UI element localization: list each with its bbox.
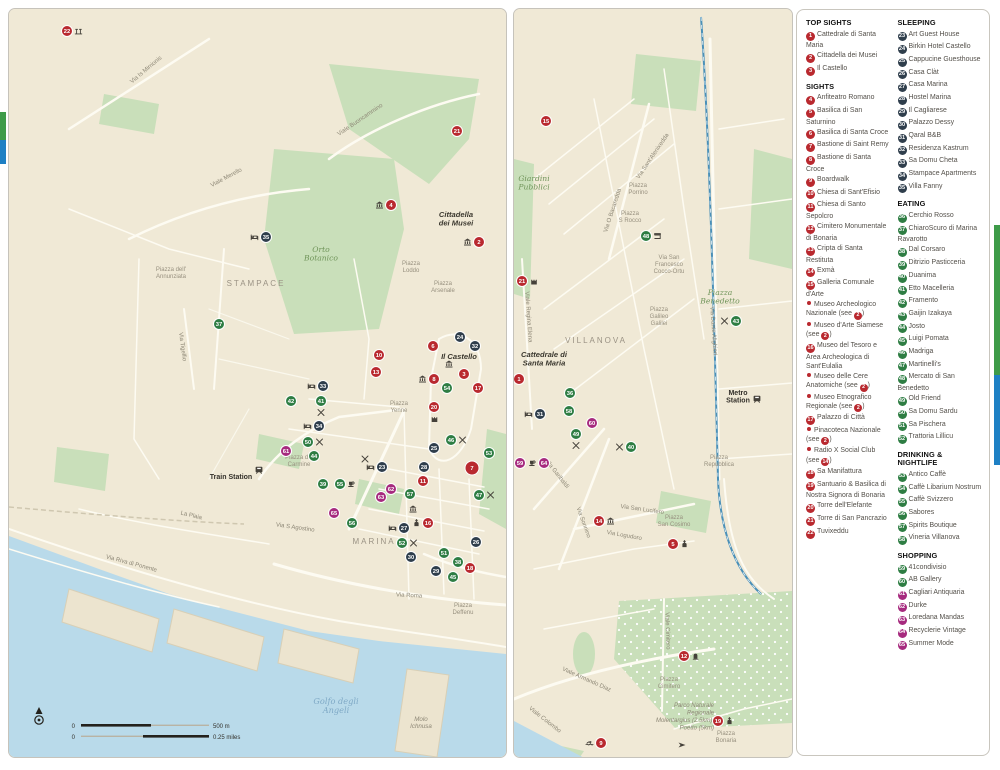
legend-item: 13Cripta di Santa Restituta — [806, 244, 891, 265]
legend-marker-number: 18 — [806, 470, 815, 479]
svg-text:7: 7 — [470, 466, 473, 472]
map-marker-21: 21 — [452, 126, 463, 137]
svg-text:44: 44 — [311, 454, 318, 460]
legend-marker-number: 41 — [898, 286, 907, 295]
legend-marker-number: 40 — [898, 274, 907, 283]
svg-text:18: 18 — [467, 566, 474, 572]
svg-text:54: 54 — [444, 386, 451, 392]
legend-marker-number: 30 — [898, 121, 907, 130]
legend-marker-number: 14 — [806, 268, 815, 277]
map-marker-16: 16 — [423, 518, 434, 529]
legend-section-title: EATING — [898, 200, 983, 209]
map-marker-35: 35 — [261, 232, 272, 243]
map-marker-26: 26 — [471, 537, 482, 548]
map-label: PiazzaBonaria — [716, 731, 737, 744]
svg-text:20: 20 — [431, 405, 437, 411]
legend-marker-number: 2 — [821, 437, 829, 445]
svg-text:28: 28 — [421, 465, 428, 471]
legend-marker-number: 53 — [898, 473, 907, 482]
svg-text:37: 37 — [216, 322, 222, 328]
map-left-canvas: STAMPACEMARINAOrtoBotanicoCittadelladei … — [9, 9, 506, 757]
legend-item: Museo delle Cere Anatomiche (see 2) — [806, 372, 891, 392]
svg-text:46: 46 — [448, 438, 455, 444]
legend-marker-number: 46 — [898, 350, 907, 359]
svg-text:21: 21 — [519, 279, 526, 285]
map-marker-29: 29 — [431, 566, 442, 577]
map-marker-14: 14 — [594, 516, 605, 527]
map-marker-22: 22 — [62, 26, 73, 37]
legend-marker-number: 23 — [898, 32, 907, 41]
map-marker-60: 60 — [587, 418, 598, 429]
map-marker-19: 19 — [713, 716, 724, 727]
svg-text:38: 38 — [455, 560, 462, 566]
map-marker-25: 25 — [429, 443, 440, 454]
legend-item: 18Sa Manifattura — [806, 467, 891, 479]
legend-item: 24Birkin Hotel Castello — [898, 42, 983, 54]
legend-item: 56Sabores — [898, 508, 983, 520]
svg-text:12: 12 — [681, 654, 687, 660]
legend-item: 50Sa Domu Sardu — [898, 407, 983, 419]
map-marker-58: 58 — [564, 406, 575, 417]
legend-item: 5Basilica di San Saturnino — [806, 106, 891, 127]
map-label: Piazza dell'Annunziata — [156, 267, 187, 280]
svg-text:30: 30 — [408, 555, 414, 561]
legend-marker-number: 19 — [806, 482, 815, 491]
map-marker-46: 46 — [446, 435, 457, 446]
svg-text:45: 45 — [450, 575, 457, 581]
legend-marker-number: 14 — [821, 458, 829, 466]
svg-text:27: 27 — [401, 526, 407, 532]
legend-item: Museo Etnografico Regionale (see 2) — [806, 393, 891, 413]
map-marker-32: 32 — [470, 341, 481, 352]
legend-marker-number: 47 — [898, 362, 907, 371]
legend-item: 25Cappucine Guesthouse — [898, 55, 983, 67]
legend-marker-number: 42 — [898, 299, 907, 308]
legend-marker-number: 31 — [898, 134, 907, 143]
tower-icon — [531, 280, 537, 285]
legend-marker-number: 5 — [806, 109, 815, 118]
legend-item: 43Gaijin Izakaya — [898, 309, 983, 321]
map-marker-5: 5 — [668, 539, 679, 550]
bullet-icon — [807, 322, 811, 326]
legend-marker-number: 60 — [898, 578, 907, 587]
svg-text:41: 41 — [318, 399, 325, 405]
map-marker-2: 2 — [474, 237, 485, 248]
svg-text:32: 32 — [472, 344, 478, 350]
svg-text:60: 60 — [589, 421, 595, 427]
map-marker-57: 57 — [405, 489, 416, 500]
map-marker-30: 30 — [406, 552, 417, 563]
map-marker-54: 54 — [442, 383, 453, 394]
legend-section-title: SHOPPING — [898, 552, 983, 561]
legend-item: 52Trattoria Lillicu — [898, 432, 983, 444]
legend-item: Museo Archeologico Nazionale (see 2) — [806, 300, 891, 320]
map-marker-15: 15 — [541, 116, 552, 127]
svg-text:61: 61 — [283, 449, 290, 455]
legend-marker-number: 1 — [806, 32, 815, 41]
map-label: Il Castello — [441, 352, 477, 361]
map-label: PiazzaS Rocco — [619, 211, 642, 224]
legend-item: 62Durke — [898, 601, 983, 613]
legend-marker-number: 45 — [898, 337, 907, 346]
map-marker-23: 23 — [377, 462, 388, 473]
legend-panel: TOP SIGHTS1Cattedrale di Santa Maria2Cit… — [796, 9, 990, 756]
legend-marker-number: 3 — [806, 67, 815, 76]
legend-item: 57Spirits Boutique — [898, 521, 983, 533]
map-marker-18: 18 — [465, 563, 476, 574]
legend-marker-number: 12 — [806, 225, 815, 234]
legend-marker-number: 8 — [806, 156, 815, 165]
legend-marker-number: 20 — [806, 504, 815, 513]
svg-text:10: 10 — [376, 353, 382, 359]
map-marker-21: 21 — [517, 276, 528, 287]
legend-item: 28Hostel Marina — [898, 93, 983, 105]
map-marker-47: 47 — [474, 490, 485, 501]
map-marker-13: 13 — [371, 367, 382, 378]
map-label: MARINA — [352, 537, 395, 546]
map-marker-43: 43 — [731, 316, 742, 327]
legend-marker-number: 22 — [806, 530, 815, 539]
map-label: PiazzaDeffenu — [453, 603, 474, 616]
svg-text:21: 21 — [454, 129, 461, 135]
map-label: PiazzaLoddo — [402, 261, 421, 274]
legend-marker-number: 24 — [898, 45, 907, 54]
svg-text:11: 11 — [420, 479, 427, 485]
bullet-icon — [807, 301, 811, 305]
map-marker-45: 45 — [448, 572, 459, 583]
svg-text:24: 24 — [457, 335, 464, 341]
map-marker-41: 41 — [316, 396, 327, 407]
legend-marker-number: 51 — [898, 422, 907, 431]
legend-marker-number: 56 — [898, 511, 907, 520]
legend-item: 17Palazzo di Città — [806, 413, 891, 425]
svg-text:56: 56 — [349, 521, 356, 527]
legend-item: 12Cimitero Monumentale di Bonaria — [806, 222, 891, 243]
left-edge-green-band — [0, 112, 6, 140]
map-label: Cittadelladei Musei — [439, 210, 474, 228]
legend-item: 29Il Cagliarese — [898, 106, 983, 118]
legend-marker-number: 21 — [806, 517, 815, 526]
map-marker-38: 38 — [453, 557, 464, 568]
map-label: PiazzaYenne — [390, 401, 409, 414]
legend-marker-number: 62 — [898, 603, 907, 612]
legend-marker-number: 33 — [898, 159, 907, 168]
map-marker-9: 9 — [596, 738, 607, 749]
legend-item: 38Dal Corsaro — [898, 245, 983, 257]
legend-item: 19Santuario & Basilica di Nostra Signora… — [806, 480, 891, 501]
legend-item: 7Bastione di Saint Remy — [806, 140, 891, 152]
map-marker-1: 1 — [514, 374, 525, 385]
svg-text:50: 50 — [305, 440, 311, 446]
legend-marker-number: 2 — [860, 384, 868, 392]
legend-marker-number: 54 — [898, 485, 907, 494]
legend-item: 45Luigi Pomata — [898, 334, 983, 346]
scale-label: 0.25 miles — [213, 735, 240, 741]
legend-marker-number: 10 — [806, 190, 815, 199]
legend-item: 4Anfiteatro Romano — [806, 93, 891, 105]
svg-text:53: 53 — [486, 451, 493, 457]
legend-item: 55Caffè Svizzero — [898, 495, 983, 507]
svg-text:33: 33 — [320, 384, 327, 390]
map-marker-59: 59 — [515, 458, 526, 469]
legend-item: 53Antico Caffè — [898, 470, 983, 482]
legend-item: 41Etto Macelleria — [898, 284, 983, 296]
legend-item: 20Torre dell'Elefante — [806, 501, 891, 513]
map-marker-49: 49 — [571, 429, 582, 440]
svg-text:55: 55 — [337, 482, 344, 488]
svg-text:13: 13 — [373, 370, 380, 376]
legend-marker-number: 28 — [898, 96, 907, 105]
legend-item: 31Qaral B&B — [898, 131, 983, 143]
legend-section-title: SLEEPING — [898, 19, 983, 28]
legend-item: 51Sa Pischera — [898, 420, 983, 432]
map-marker-44: 44 — [309, 451, 320, 462]
svg-text:39: 39 — [320, 482, 327, 488]
legend-item: 8Bastione di Santa Croce — [806, 153, 891, 174]
map-marker-50: 50 — [303, 437, 314, 448]
scale-label: 500 m — [213, 724, 230, 730]
legend-item: 6Basilica di Santa Croce — [806, 128, 891, 140]
map-marker-37: 37 — [214, 319, 225, 330]
right-edge-blue-band — [994, 375, 1000, 465]
map-marker-36: 36 — [565, 388, 576, 399]
svg-text:23: 23 — [379, 465, 386, 471]
legend-item: 63Loredana Mandas — [898, 613, 983, 625]
svg-text:35: 35 — [263, 235, 270, 241]
legend-item: 34Stampace Apartments — [898, 169, 983, 181]
page: STAMPACEMARINAOrtoBotanicoCittadelladei … — [0, 0, 1000, 770]
map-marker-17: 17 — [473, 383, 484, 394]
legend-item: 37ChiaroScuro di Marina Ravarotto — [898, 224, 983, 245]
map-label: MetroStation — [726, 390, 750, 405]
svg-text:57: 57 — [407, 492, 413, 498]
legend-item: 22Tuvixeddu — [806, 527, 891, 539]
map-marker-64: 64 — [539, 458, 550, 469]
map-marker-11: 11 — [418, 476, 429, 487]
legend-item: 58Vineria Villanova — [898, 533, 983, 545]
legend-marker-number: 6 — [806, 130, 815, 139]
legend-marker-number: 36 — [898, 214, 907, 223]
map-panel-right: GiardiniPubbliciVILLANOVAPiazzaPorrinoPi… — [513, 8, 793, 758]
map-marker-24: 24 — [455, 332, 466, 343]
map-label: GiardiniPubblici — [517, 174, 550, 192]
map-marker-20: 20 — [429, 402, 440, 413]
legend-marker-number: 64 — [898, 629, 907, 638]
legend-marker-number: 13 — [806, 247, 815, 256]
svg-text:16: 16 — [425, 521, 432, 527]
map-marker-63: 63 — [376, 492, 387, 503]
map-marker-62: 62 — [386, 484, 397, 495]
legend-marker-number: 48 — [898, 375, 907, 384]
svg-text:22: 22 — [64, 29, 70, 35]
legend-marker-number: 61 — [898, 591, 907, 600]
legend-marker-number: 49 — [898, 397, 907, 406]
svg-text:65: 65 — [331, 511, 338, 517]
legend-item: Museo d'Arte Siamese (see 2) — [806, 321, 891, 341]
svg-text:51: 51 — [441, 551, 448, 557]
legend-column-1: TOP SIGHTS1Cattedrale di Santa Maria2Cit… — [806, 19, 891, 651]
legend-marker-number: 32 — [898, 146, 907, 155]
legend-item: 3Il Castello — [806, 64, 891, 76]
legend-item: 16Museo del Tesoro e Area Archeologica d… — [806, 341, 891, 371]
svg-text:48: 48 — [643, 234, 650, 240]
svg-text:29: 29 — [433, 569, 440, 575]
legend-marker-number: 58 — [898, 536, 907, 545]
svg-text:36: 36 — [567, 391, 574, 397]
legend-column-2: SLEEPING23Art Guest House24Birkin Hotel … — [898, 19, 983, 651]
legend-marker-number: 2 — [821, 332, 829, 340]
legend-marker-number: 2 — [854, 404, 862, 412]
map-marker-27: 27 — [399, 523, 410, 534]
legend-marker-number: 25 — [898, 58, 907, 67]
legend-item: Radio X Social Club (see 14) — [806, 446, 891, 466]
svg-text:40: 40 — [628, 445, 634, 451]
legend-marker-number: 65 — [898, 641, 907, 650]
legend-item: 5941condivisio — [898, 563, 983, 575]
legend-item: 1Cattedrale di Santa Maria — [806, 30, 891, 51]
legend-marker-number: 7 — [806, 143, 815, 152]
svg-text:19: 19 — [715, 719, 722, 725]
legend-item: 21Torre di San Pancrazio — [806, 514, 891, 526]
bullet-icon — [807, 394, 811, 398]
legend-marker-number: 50 — [898, 410, 907, 419]
map-marker-31: 31 — [535, 409, 546, 420]
legend-item: 26Casa Clàt — [898, 68, 983, 80]
legend-item: 11Chiesa di Santo Sepolcro — [806, 200, 891, 221]
left-edge-blue-band — [0, 140, 6, 164]
legend-item: 27Casa Marina — [898, 80, 983, 92]
svg-text:52: 52 — [399, 541, 405, 547]
map-marker-10: 10 — [374, 350, 385, 361]
legend-marker-number: 57 — [898, 523, 907, 532]
legend-marker-number: 43 — [898, 312, 907, 321]
map-marker-52: 52 — [397, 538, 408, 549]
legend-marker-number: 9 — [806, 178, 815, 187]
legend-marker-number: 63 — [898, 616, 907, 625]
svg-text:49: 49 — [573, 432, 580, 438]
svg-text:2: 2 — [477, 240, 480, 246]
map-label: PiazzaCimitero — [658, 677, 681, 690]
legend-marker-number: 38 — [898, 248, 907, 257]
legend-marker-number: 44 — [898, 324, 907, 333]
legend-marker-number: 4 — [806, 96, 815, 105]
legend-item: 61Cagliari Antiquaria — [898, 588, 983, 600]
legend-marker-number: 26 — [898, 70, 907, 79]
tower-icon — [432, 417, 438, 422]
legend-marker-number: 11 — [806, 203, 815, 212]
bullet-icon — [807, 427, 811, 431]
legend-item: 32Residenza Kastrum — [898, 144, 983, 156]
map-marker-55: 55 — [335, 479, 346, 490]
legend-item: 49Old Friend — [898, 394, 983, 406]
map-marker-4: 4 — [386, 200, 397, 211]
map-marker-33: 33 — [318, 381, 329, 392]
legend-item: 65Summer Mode — [898, 639, 983, 651]
legend-marker-number: 2 — [854, 312, 862, 320]
map-marker-8: 8 — [429, 374, 440, 385]
legend-marker-number: 35 — [898, 184, 907, 193]
legend-item: 2Cittadella dei Musei — [806, 51, 891, 63]
map-label: PiazzaPorrino — [628, 183, 648, 196]
svg-text:47: 47 — [476, 493, 482, 499]
legend-item: 36Cerchio Rosso — [898, 211, 983, 223]
svg-text:63: 63 — [378, 495, 385, 501]
map-panel-left: STAMPACEMARINAOrtoBotanicoCittadelladei … — [8, 8, 507, 758]
map-marker-61: 61 — [281, 446, 292, 457]
legend-marker-number: 59 — [898, 565, 907, 574]
legend-item: 9Boardwalk — [806, 175, 891, 187]
legend-marker-number: 37 — [898, 226, 907, 235]
map-marker-56: 56 — [347, 518, 358, 529]
map-label: Train Station — [210, 474, 252, 481]
svg-text:43: 43 — [733, 319, 740, 325]
legend-item: 54Caffè Libarium Nostrum — [898, 483, 983, 495]
legend-item: 47Martinelli's — [898, 360, 983, 372]
right-edge-green-band — [994, 225, 1000, 375]
legend-item: 44Josto — [898, 322, 983, 334]
map-marker-28: 28 — [419, 462, 430, 473]
legend-item: 35Villa Fanny — [898, 182, 983, 194]
legend-marker-number: 29 — [898, 108, 907, 117]
svg-text:64: 64 — [541, 461, 548, 467]
bullet-icon — [807, 373, 811, 377]
legend-section-title: SIGHTS — [806, 83, 891, 92]
legend-item: 46Madriga — [898, 347, 983, 359]
svg-text:26: 26 — [473, 540, 480, 546]
map-marker-53: 53 — [484, 448, 495, 459]
legend-item: 64Recyclerie Vintage — [898, 626, 983, 638]
legend-item: 15Galleria Comunale d'Arte — [806, 278, 891, 299]
svg-text:31: 31 — [537, 412, 544, 418]
legend-marker-number: 15 — [806, 281, 815, 290]
legend-marker-number: 2 — [806, 54, 815, 63]
legend-item: 40Duanima — [898, 271, 983, 283]
map-label: Cattedrale diSanta Maria — [521, 350, 568, 368]
legend-marker-number: 16 — [806, 344, 815, 353]
map-label: PiazzaArsenale — [431, 281, 455, 294]
legend-marker-number: 17 — [806, 416, 815, 425]
svg-text:25: 25 — [431, 446, 438, 452]
svg-text:58: 58 — [566, 409, 573, 415]
legend-item: 10Chiesa di Sant'Efisio — [806, 188, 891, 200]
map-marker-48: 48 — [641, 231, 652, 242]
legend-item: 33Sa Domu Cheta — [898, 156, 983, 168]
bullet-icon — [807, 447, 811, 451]
svg-text:42: 42 — [288, 399, 294, 405]
legend-marker-number: 52 — [898, 435, 907, 444]
legend-section-title: TOP SIGHTS — [806, 19, 891, 28]
legend-marker-number: 27 — [898, 83, 907, 92]
legend-item: 30Palazzo Dessy — [898, 118, 983, 130]
legend-item: Pinacoteca Nazionale (see 2) — [806, 426, 891, 446]
map-marker-12: 12 — [679, 651, 690, 662]
svg-text:17: 17 — [475, 386, 481, 392]
svg-text:62: 62 — [388, 487, 394, 493]
svg-text:14: 14 — [596, 519, 603, 525]
map-label: PiazzaGalileoGalilei — [650, 307, 669, 327]
map-marker-39: 39 — [318, 479, 329, 490]
legend-section-title: DRINKING & NIGHTLIFE — [898, 451, 983, 468]
svg-text:15: 15 — [543, 119, 550, 125]
legend-marker-number: 39 — [898, 261, 907, 270]
legend-item: 39Ditrizio Pasticceria — [898, 258, 983, 270]
legend-item: 48Mercato di San Benedetto — [898, 372, 983, 393]
svg-text:34: 34 — [316, 424, 323, 430]
legend-marker-number: 55 — [898, 498, 907, 507]
legend-marker-number: 34 — [898, 172, 907, 181]
map-marker-65: 65 — [329, 508, 340, 519]
svg-text:59: 59 — [517, 461, 524, 467]
